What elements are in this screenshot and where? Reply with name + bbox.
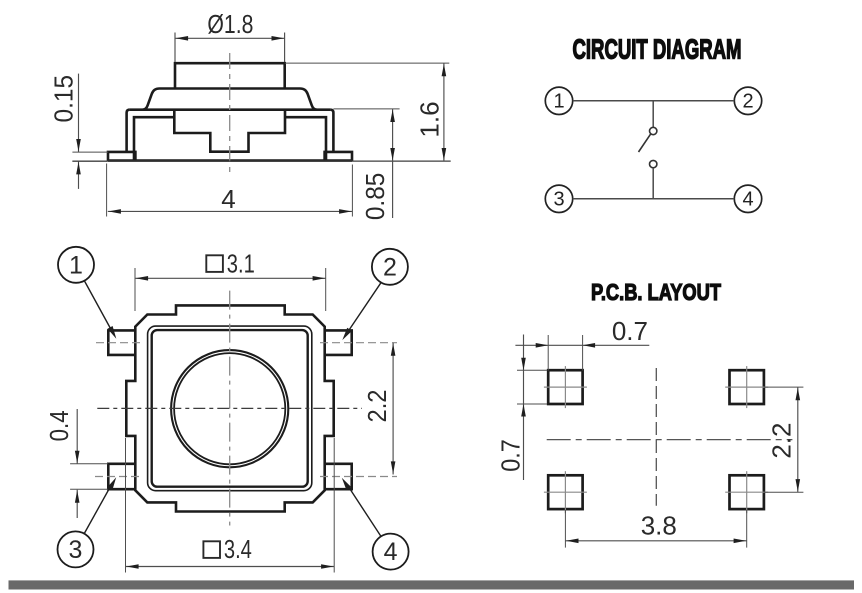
svg-text:2: 2 [742, 91, 753, 113]
svg-text:3.8: 3.8 [641, 511, 677, 541]
svg-text:2: 2 [383, 253, 397, 281]
svg-text:1: 1 [69, 251, 83, 279]
svg-text:0.7: 0.7 [496, 439, 526, 472]
svg-text:0.7: 0.7 [612, 316, 648, 346]
svg-text:4: 4 [384, 538, 398, 566]
svg-text:Ø1.8: Ø1.8 [207, 9, 253, 39]
svg-text:2.2: 2.2 [362, 390, 392, 423]
svg-text:P.C.B. LAYOUT: P.C.B. LAYOUT [591, 279, 721, 305]
svg-text:2.2: 2.2 [767, 423, 797, 459]
svg-text:3: 3 [553, 189, 564, 211]
svg-text:0.85: 0.85 [360, 173, 390, 221]
svg-text:4: 4 [221, 184, 235, 214]
svg-text:1: 1 [553, 91, 564, 113]
svg-text:CIRCUIT DIAGRAM: CIRCUIT DIAGRAM [573, 34, 742, 65]
svg-text:1.6: 1.6 [414, 101, 444, 137]
svg-text:4: 4 [742, 189, 753, 211]
svg-text:3: 3 [69, 536, 83, 564]
svg-text:0.4: 0.4 [44, 410, 74, 441]
svg-text:3.4: 3.4 [224, 534, 252, 564]
svg-text:3.1: 3.1 [227, 248, 255, 278]
svg-text:0.15: 0.15 [49, 75, 79, 123]
